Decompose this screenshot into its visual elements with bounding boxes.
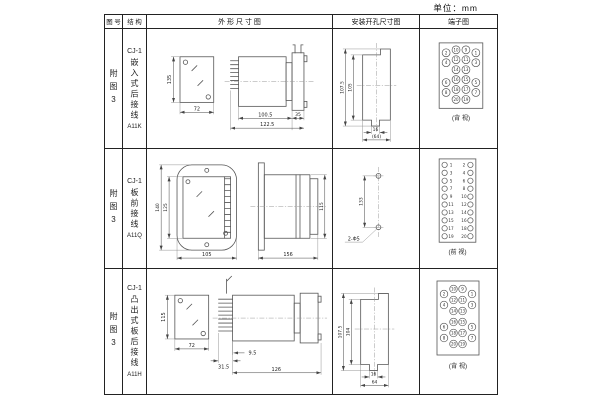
svg-text:16: 16: [461, 218, 467, 223]
svg-text:4: 4: [463, 170, 466, 175]
svg-text:19: 19: [448, 234, 454, 239]
mounting-drawing-a11q: 133 2-Φ5: [333, 149, 419, 268]
dim-flange-width: 35: [295, 112, 301, 118]
terminal-view-label: (前 视): [448, 248, 466, 256]
row1-outline-cell: 135 72 100.5 35 122.5: [147, 29, 333, 149]
row2-structure: CJ-1 板前接线 A11Q: [123, 149, 147, 269]
svg-text:13: 13: [463, 67, 469, 72]
svg-text:13: 13: [460, 309, 466, 314]
dim-cutout-width: 64: [372, 380, 378, 386]
svg-text:10: 10: [454, 47, 460, 52]
row1-fig-no: 附图3: [105, 29, 123, 149]
row3-terminal-cell: 2109141211314136161558181772019 (背 视): [420, 269, 497, 394]
dim-hole-distance: 133: [359, 197, 365, 206]
mounting-drawing-a11k: 107.5 105 16 (64): [333, 29, 419, 148]
svg-text:10: 10: [451, 287, 457, 292]
terminal-diagram-a11q: 1234567891011121314151617181920 (前 视): [420, 149, 497, 268]
terminal-grid: 2109141211314136161558181772019: [440, 285, 476, 348]
terminal-strip: 1234567891011121314151617181920: [442, 162, 473, 239]
svg-text:8: 8: [443, 336, 446, 341]
dim-total-length: 122.5: [260, 122, 274, 128]
outline-drawing-a11k: 135 72 100.5 35 122.5: [147, 29, 332, 148]
row3-structure: CJ-1 凸出式板后接线 A11H: [123, 269, 147, 394]
dim-cutout-inner-height: 105: [347, 83, 353, 92]
svg-text:9: 9: [450, 194, 453, 199]
svg-text:19: 19: [460, 342, 466, 347]
svg-text:5: 5: [475, 80, 478, 85]
svg-text:18: 18: [461, 226, 467, 231]
mounting-drawing-a11h: 107.5 104 16 64: [333, 269, 419, 394]
dim-pin-length: 31.5: [218, 364, 229, 370]
dim-slot-width: 16: [371, 371, 377, 377]
dim-cutout-inner-height: 104: [346, 328, 352, 337]
svg-text:10: 10: [461, 194, 467, 199]
dim-cutout-outer-height: 107.5: [339, 81, 345, 94]
header-outline: 外 形 尺 寸 图: [147, 15, 333, 29]
svg-text:3: 3: [475, 60, 478, 65]
dim-side-height: 115: [319, 202, 325, 211]
svg-text:11: 11: [460, 298, 466, 303]
svg-text:6: 6: [443, 325, 446, 330]
dim-pin-offset: 9.5: [248, 351, 256, 357]
terminal-diagram-a11k: 2109141211314136161558181772019 (背 视): [420, 29, 497, 148]
svg-text:16: 16: [451, 320, 457, 325]
svg-text:4: 4: [443, 303, 446, 308]
svg-text:11: 11: [463, 57, 469, 62]
svg-text:17: 17: [463, 87, 469, 92]
dim-plate-width: 105: [202, 252, 211, 258]
outline-drawing-a11q: 140 125 105 156 115: [147, 149, 332, 268]
svg-text:17: 17: [460, 331, 466, 336]
svg-text:6: 6: [463, 178, 466, 183]
dim-front-width: 72: [194, 106, 200, 112]
dimension-table: 图 号 结 构 外 形 尺 寸 图 安装开孔尺寸图 端子图 附图3 CJ-1 嵌…: [104, 14, 498, 395]
svg-text:17: 17: [448, 226, 454, 231]
svg-text:12: 12: [454, 57, 460, 62]
svg-text:14: 14: [454, 67, 460, 72]
svg-text:5: 5: [471, 325, 474, 330]
svg-text:18: 18: [451, 331, 457, 336]
svg-text:12: 12: [461, 202, 467, 207]
svg-text:15: 15: [463, 77, 469, 82]
svg-text:6: 6: [445, 80, 448, 85]
dim-hole-spec: 2-Φ5: [348, 237, 360, 243]
svg-text:14: 14: [451, 309, 457, 314]
dim-body-length: 100.5: [258, 112, 272, 118]
dim-inner-height: 125: [163, 203, 169, 212]
svg-text:11: 11: [448, 202, 454, 207]
svg-text:4: 4: [445, 60, 448, 65]
header-terminal: 端子图: [420, 15, 497, 29]
svg-text:12: 12: [451, 298, 457, 303]
terminal-view-label: (背 视): [452, 114, 470, 122]
dim-front-height: 115: [161, 312, 167, 321]
svg-text:2: 2: [443, 292, 446, 297]
terminal-diagram-a11h: 2109141211314136161558181772019 (背 视): [420, 269, 497, 394]
dim-side-length: 156: [283, 252, 292, 258]
svg-text:9: 9: [461, 287, 464, 292]
row3-mounting-cell: 107.5 104 16 64: [333, 269, 420, 394]
dim-front-width: 72: [189, 343, 195, 349]
unit-label: 单位：mm: [433, 2, 478, 14]
svg-text:1: 1: [450, 162, 453, 167]
svg-text:15: 15: [460, 320, 466, 325]
svg-text:15: 15: [448, 218, 454, 223]
svg-text:20: 20: [461, 234, 467, 239]
dim-cutout-width: (64): [372, 134, 381, 140]
header-structure: 结 构: [123, 15, 147, 29]
dim-plate-height: 140: [155, 203, 161, 212]
dim-slot-width: 16: [373, 127, 379, 133]
svg-text:16: 16: [454, 77, 460, 82]
datasheet-page: 单位：mm 图 号 结 构 外 形 尺 寸 图 安装开孔尺寸图 端子图 附图3 …: [0, 0, 600, 400]
terminal-view-label: (背 视): [449, 362, 467, 370]
row1-mounting-cell: 107.5 105 16 (64): [333, 29, 420, 149]
header-fig-no: 图 号: [105, 15, 123, 29]
svg-text:3: 3: [471, 303, 474, 308]
svg-text:14: 14: [461, 210, 467, 215]
svg-text:13: 13: [448, 210, 454, 215]
svg-text:18: 18: [454, 87, 460, 92]
terminal-grid: 2109141211314136161558181772019: [442, 46, 480, 104]
svg-text:20: 20: [454, 97, 460, 102]
svg-text:7: 7: [450, 186, 453, 191]
svg-text:7: 7: [475, 90, 478, 95]
row3-outline-cell: 115 72 9.5 31.5 126: [147, 269, 333, 394]
svg-text:19: 19: [463, 97, 469, 102]
row1-structure: CJ-1 嵌入式后接线 A11K: [123, 29, 147, 149]
svg-text:5: 5: [450, 178, 453, 183]
row2-mounting-cell: 133 2-Φ5: [333, 149, 420, 269]
svg-text:2: 2: [445, 50, 448, 55]
svg-text:3: 3: [450, 170, 453, 175]
svg-text:9: 9: [465, 47, 468, 52]
svg-text:1: 1: [471, 292, 474, 297]
svg-text:7: 7: [471, 336, 474, 341]
row2-outline-cell: 140 125 105 156 115: [147, 149, 333, 269]
row2-fig-no: 附图3: [105, 149, 123, 269]
svg-text:2: 2: [463, 162, 466, 167]
outline-drawing-a11h: 115 72 9.5 31.5 126: [147, 269, 332, 394]
dim-front-height: 135: [167, 75, 173, 84]
svg-text:8: 8: [445, 90, 448, 95]
svg-text:20: 20: [451, 342, 457, 347]
row1-terminal-cell: 2109141211314136161558181772019 (背 视): [420, 29, 497, 149]
row2-terminal-cell: 1234567891011121314151617181920 (前 视): [420, 149, 497, 269]
dim-total-length: 126: [272, 367, 281, 373]
row3-fig-no: 附图3: [105, 269, 123, 394]
header-mounting: 安装开孔尺寸图: [333, 15, 420, 29]
svg-text:8: 8: [463, 186, 466, 191]
svg-text:1: 1: [475, 50, 478, 55]
dim-cutout-outer-height: 107.5: [338, 325, 344, 338]
